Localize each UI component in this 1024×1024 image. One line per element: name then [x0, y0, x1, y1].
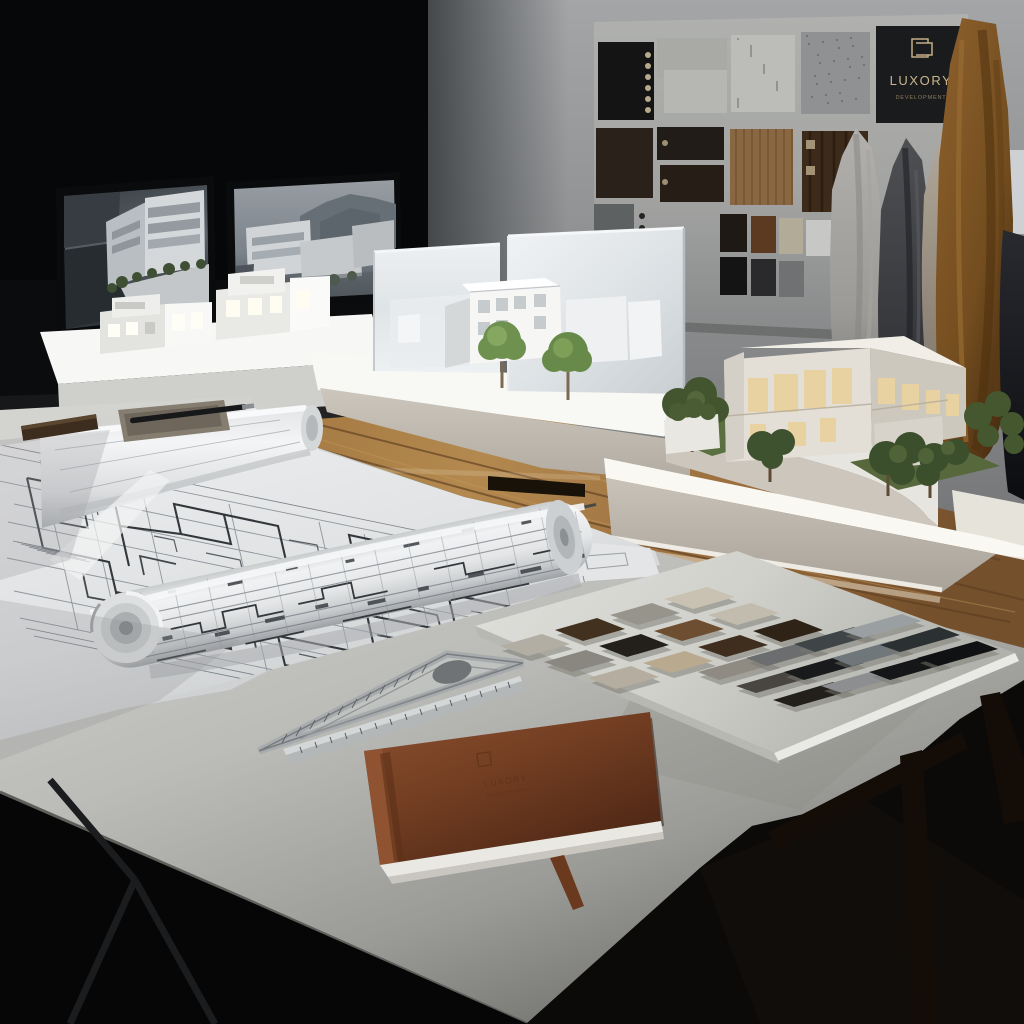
svg-text:DEVELOPMENT: DEVELOPMENT [895, 95, 946, 101]
svg-text:LUXORY: LUXORY [890, 73, 953, 88]
